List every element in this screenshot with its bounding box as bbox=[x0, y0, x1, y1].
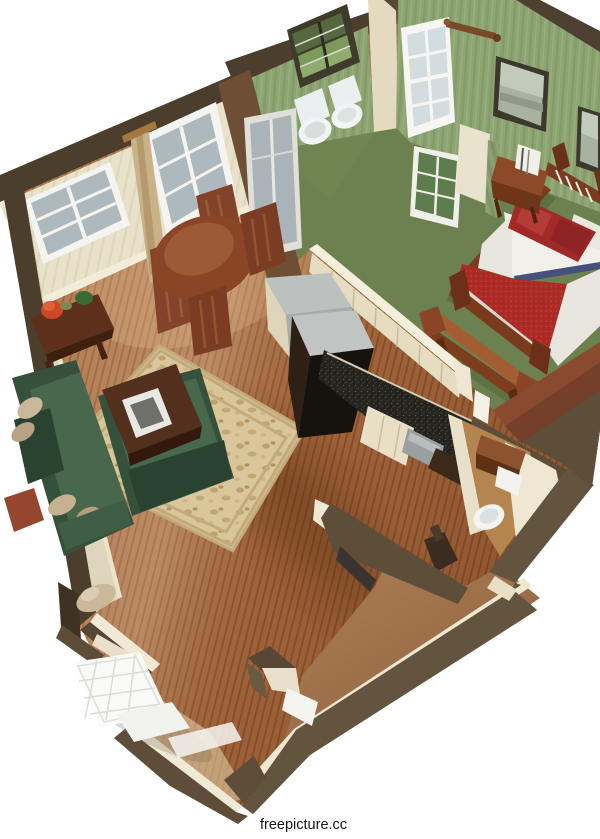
svg-text:freepicture.cc: freepicture.cc bbox=[260, 817, 347, 833]
